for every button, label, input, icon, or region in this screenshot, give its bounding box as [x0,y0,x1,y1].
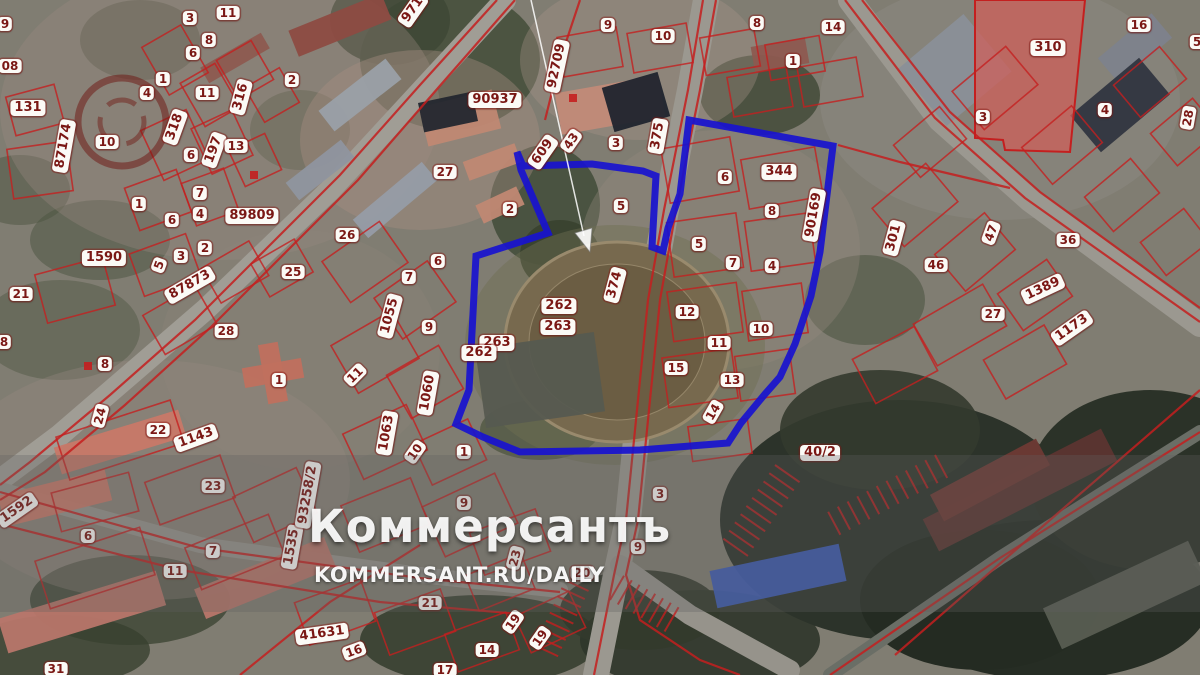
parcel-label: 7 [726,256,740,270]
parcel-label: 40/2 [800,445,840,461]
parcel-label: 1 [272,373,286,387]
red-marker [84,362,92,370]
parcel-label: 3 [183,11,197,25]
parcel-label: 9 [422,320,436,334]
parcel-label: 8 [765,204,779,218]
parcel-label: 4 [193,207,207,221]
parcel-label: 2 [503,202,517,216]
parcel-label: 13 [225,139,248,153]
parcel-label: 90937 [468,92,521,108]
parcel-label: 21 [10,287,33,301]
parcel-label: 21 [419,596,442,610]
parcel-label: 31 [45,662,68,675]
parcel-label: 1 [132,197,146,211]
terrain-patch [780,370,980,490]
parcel-label: 13 [721,373,744,387]
parcel-label: 17 [434,663,457,675]
parcel-label: 36 [1057,233,1080,247]
parcel-label: 3 [976,110,990,124]
parcel-label: 4 [1098,103,1112,117]
parcel-label: 3 [174,249,188,263]
parcel-label: 2 [285,73,299,87]
parcel-label: 16 [1128,18,1151,32]
parcel-label: 11 [164,564,187,578]
parcel-label: 5 [614,199,628,213]
parcel-label: 10 [652,29,675,43]
parcel-label: 89809 [225,208,278,224]
parcel-label: 3 [609,136,623,150]
parcel-label: 11 [708,336,731,350]
parcel-label: 6 [184,148,198,162]
parcel-label: 14 [476,643,499,657]
parcel-label: 25 [282,265,305,279]
parcel-label: 262 [541,298,576,314]
parcel-label: 131 [10,100,45,116]
parcel-label: 8 [0,335,11,349]
parcel-label: 6 [186,46,200,60]
parcel-label: 08 [0,59,21,73]
parcel-label: 7 [193,186,207,200]
parcel-label: 12 [676,305,699,319]
parcel-label: 8 [98,357,112,371]
parcel-label: 27 [982,307,1005,321]
parcel-label: 263 [540,319,575,335]
parcel-label: 1 [156,72,170,86]
parcel-label: 23 [202,479,225,493]
parcel-label: 344 [761,164,796,180]
parcel-label: 26 [336,228,359,242]
parcel-label: 310 [1030,40,1065,56]
parcel-label: 1 [457,445,471,459]
parcel-label: 5 [1190,35,1200,49]
parcel-label: 15 [665,361,688,375]
parcel-label: 6 [718,170,732,184]
parcel-label: 6 [165,213,179,227]
parcel-label: 1 [786,54,800,68]
parcel-label: 22 [147,423,170,437]
parcel-label: 9 [601,18,615,32]
cadastral-parcel-line [935,213,1016,292]
parcel-label: 5 [692,237,706,251]
parcel-label: 11 [217,6,240,20]
parcel-label: 11 [196,86,219,100]
red-marker [250,171,258,179]
kommersant-logo-text: Коммерсантъ [308,500,671,553]
kommersant-site-url: KOMMERSANT.RU/DAILY [314,563,605,587]
parcel-label: 4 [140,86,154,100]
parcel-label: 6 [81,529,95,543]
parcel-label: 14 [822,20,845,34]
parcel-label: 10 [750,322,773,336]
parcel-label: 28 [215,324,238,338]
parcel-label: 27 [434,165,457,179]
parcel-label: 8 [202,33,216,47]
satellite-map: 9081318717431186141123163181019713674618… [0,0,1200,675]
red-marker [569,94,577,102]
parcel-label: 8 [750,16,764,30]
cadastral-parcel-line [913,284,1006,366]
parcel-label: 6 [431,254,445,268]
parcel-label: 3 [653,487,667,501]
cadastral-parcel-line [1140,209,1200,276]
parcel-label: 9 [0,17,12,31]
parcel-label: 7 [402,270,416,284]
parcel-label: 7 [206,544,220,558]
parcel-label: 4 [765,259,779,273]
parcel-label: 2 [198,241,212,255]
parcel-label: 262 [461,345,496,361]
parcel-label: 46 [925,258,948,272]
parcel-label: 10 [96,135,119,149]
parcel-label: 1590 [82,250,126,266]
